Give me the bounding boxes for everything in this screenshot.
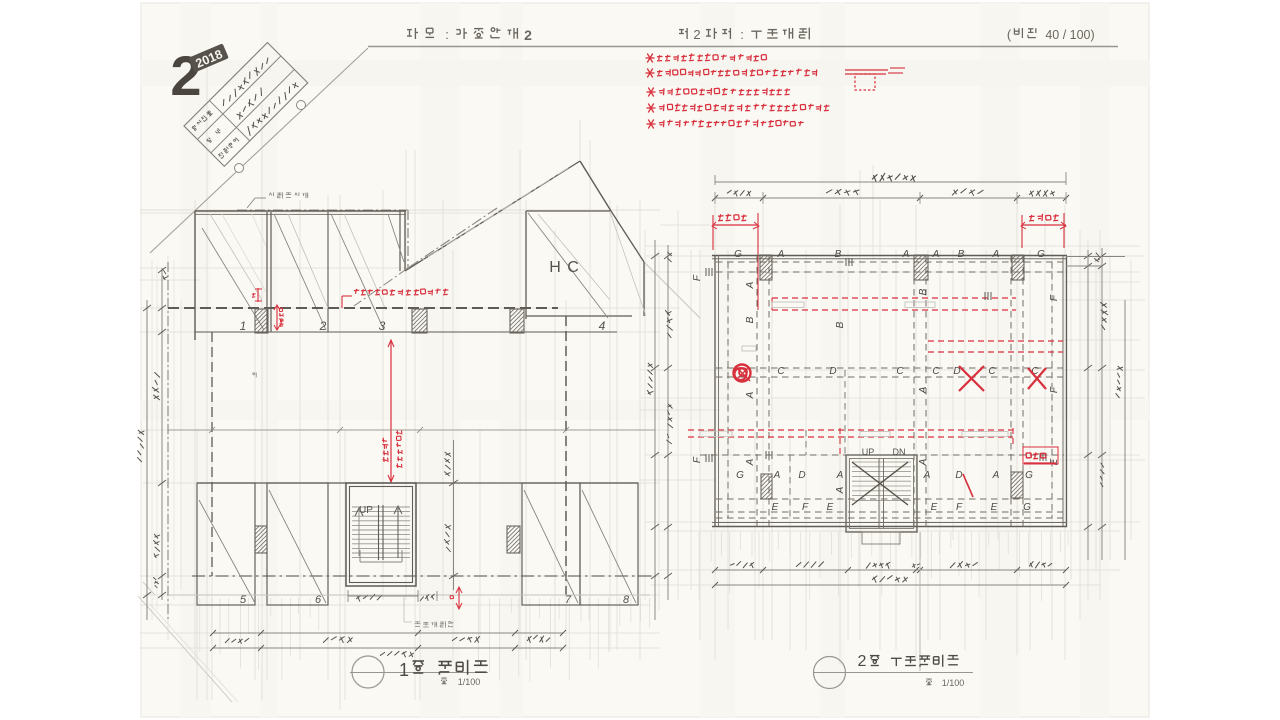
svg-text:B: B (835, 249, 842, 260)
svg-text:UP: UP (862, 447, 875, 457)
svg-text:F: F (802, 502, 809, 513)
svg-text:A: A (992, 470, 1000, 481)
svg-text:E: E (991, 502, 998, 513)
svg-text:A: A (932, 249, 940, 260)
svg-text:F: F (1049, 294, 1060, 301)
svg-text:A: A (918, 458, 929, 466)
svg-text:C: C (988, 366, 996, 377)
svg-text:C: C (896, 366, 904, 377)
svg-text:B: B (745, 316, 756, 323)
svg-text:UP: UP (359, 505, 373, 516)
svg-text:2: 2 (319, 319, 327, 333)
svg-text:1/100: 1/100 (458, 677, 481, 687)
svg-text:A: A (918, 386, 929, 394)
svg-text:DN: DN (893, 447, 906, 457)
svg-text:G: G (1023, 502, 1031, 513)
svg-text:C: C (932, 366, 940, 377)
svg-text:3: 3 (379, 319, 386, 333)
svg-text:8: 8 (623, 594, 630, 606)
svg-text:7: 7 (565, 594, 572, 606)
svg-text:4: 4 (599, 319, 606, 333)
svg-text:B: B (835, 321, 846, 328)
svg-text:5: 5 (240, 594, 247, 606)
svg-text:G: G (736, 470, 744, 481)
svg-text:40 / 100): 40 / 100) (1045, 28, 1094, 42)
svg-text:6: 6 (315, 594, 322, 606)
svg-text:A: A (773, 470, 781, 481)
svg-text:F: F (956, 502, 963, 513)
svg-text:2: 2 (693, 27, 700, 42)
svg-text:A: A (902, 249, 910, 260)
svg-text:A: A (836, 470, 844, 481)
svg-text::: : (740, 27, 744, 42)
svg-text:F: F (1049, 386, 1060, 393)
svg-text:D: D (798, 470, 805, 481)
svg-text:C: C (777, 366, 785, 377)
svg-text:G: G (734, 249, 742, 260)
svg-text:D: D (955, 470, 962, 481)
svg-text:2: 2 (524, 27, 532, 43)
svg-text:(: ( (1007, 27, 1012, 42)
svg-text:D: D (829, 366, 836, 377)
svg-text:1/100: 1/100 (942, 678, 965, 688)
svg-text:E: E (772, 502, 779, 513)
svg-text:2: 2 (858, 653, 867, 670)
svg-text:E: E (931, 502, 938, 513)
svg-text:G: G (1025, 470, 1033, 481)
svg-text:F: F (692, 456, 703, 463)
svg-text:1: 1 (399, 660, 409, 680)
svg-text:A: A (777, 249, 785, 260)
svg-text:A: A (992, 249, 1000, 260)
svg-text:2: 2 (170, 44, 201, 107)
svg-text:F: F (692, 274, 703, 281)
svg-text:E: E (827, 502, 834, 513)
svg-text:B: B (958, 249, 965, 260)
svg-text:A: A (745, 391, 756, 399)
svg-text:A: A (745, 281, 756, 289)
svg-text:A: A (923, 470, 931, 481)
svg-text:G: G (1037, 249, 1045, 260)
svg-text::: : (445, 27, 449, 42)
svg-text:H: H (549, 259, 561, 276)
svg-text:B: B (918, 288, 929, 295)
svg-text:A: A (835, 486, 846, 494)
svg-text:C: C (567, 259, 579, 276)
svg-text:A: A (745, 458, 756, 466)
svg-text:1: 1 (240, 319, 247, 333)
